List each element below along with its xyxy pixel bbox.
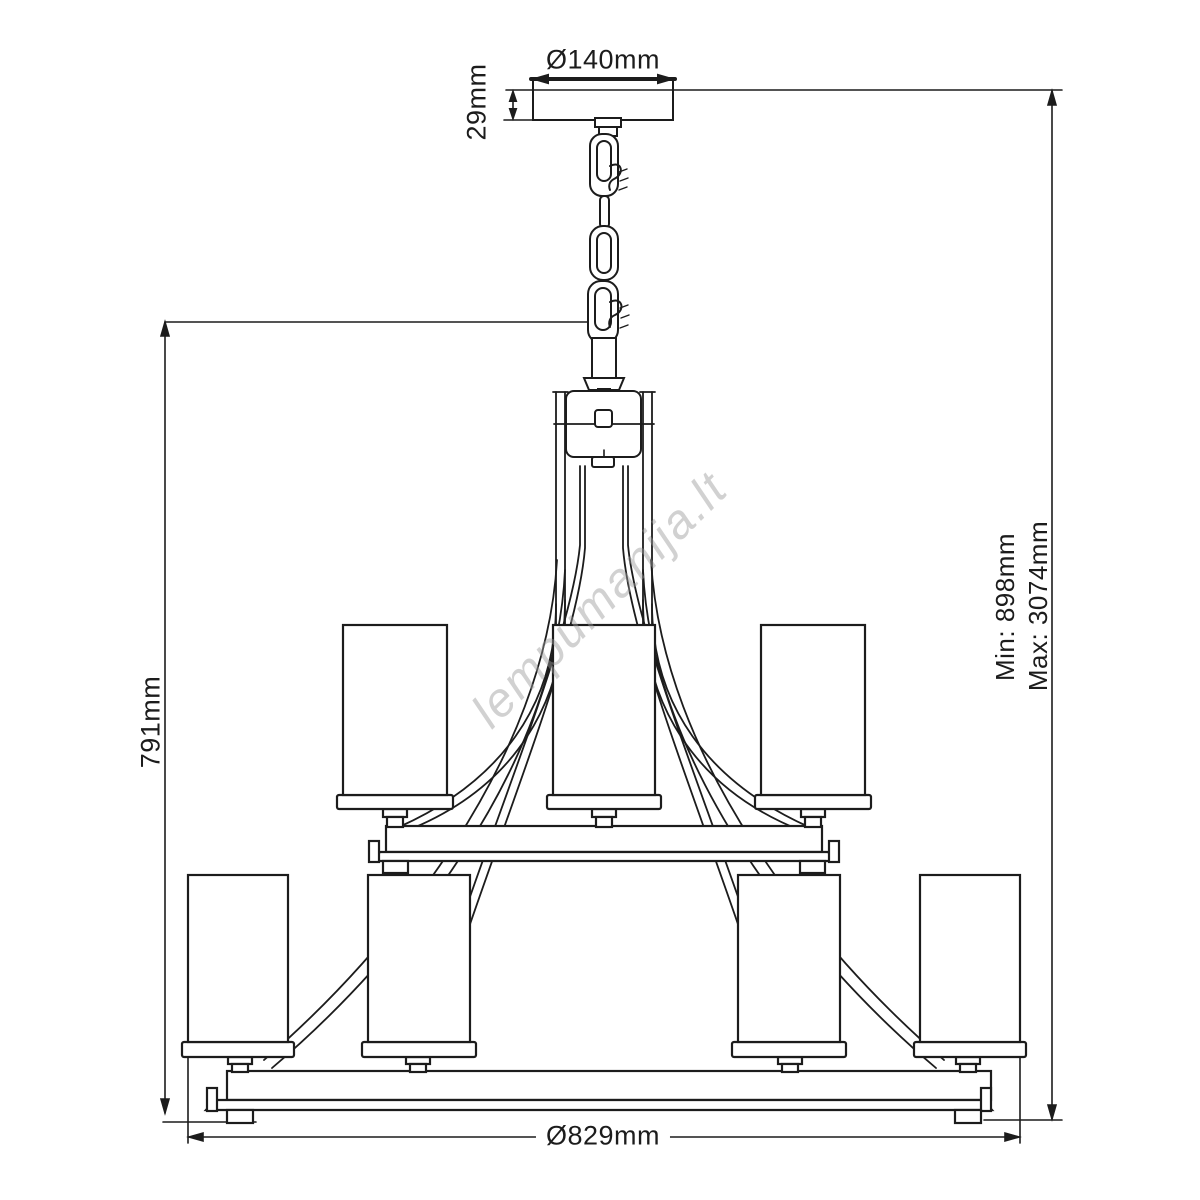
dim-canopy-height: 29mm (464, 63, 491, 140)
bar-finial (955, 1110, 981, 1123)
bar-finial (800, 861, 825, 873)
arrowhead (1048, 91, 1056, 105)
bar-end-hook (369, 841, 379, 862)
center-hub (554, 391, 654, 467)
diagram-canvas: Ø140mm 29mm 791mm Min: 898mm Max: 3074mm… (0, 0, 1200, 1200)
shade-plate (732, 1042, 846, 1057)
arrowhead (510, 92, 516, 101)
arrowhead (1005, 1133, 1019, 1141)
shade-plate (337, 795, 453, 809)
cylinder-shade (738, 875, 840, 1042)
arrowhead (510, 109, 516, 118)
chandelier-line-drawing (0, 0, 1200, 1200)
candle-stem (406, 1057, 430, 1072)
bar-finial (227, 1110, 253, 1123)
shade-plate (182, 1042, 294, 1057)
bar-end-hook (981, 1088, 991, 1111)
bar-finial (383, 861, 408, 873)
bar-end-hook (207, 1088, 217, 1111)
dim-suspension-max: Max: 3074mm (1025, 521, 1051, 691)
chain-link (590, 226, 618, 280)
cylinder-shade (553, 625, 655, 795)
arrowhead (189, 1133, 203, 1141)
cylinder-shade (368, 875, 470, 1042)
ceiling-canopy (504, 75, 1062, 120)
cylinder-shade (761, 625, 865, 795)
dim-canopy-diameter: Ø140mm (546, 47, 660, 74)
cylinder-shade (920, 875, 1020, 1042)
shade-plate (362, 1042, 476, 1057)
arrowhead (161, 322, 169, 336)
shade-plate (547, 795, 661, 809)
dim-body-height: 791mm (138, 676, 165, 769)
shade-plate (755, 795, 871, 809)
shade-plate (914, 1042, 1026, 1057)
cylinder-shade (343, 625, 447, 795)
lower-tier-bar (206, 1071, 992, 1123)
chain-hook (588, 281, 618, 343)
candle-stem (383, 809, 407, 827)
candle-stem (956, 1057, 980, 1072)
candle-stem (801, 809, 825, 827)
upper-tier-lights (337, 625, 871, 827)
bar-end-hook (829, 841, 839, 862)
suspension-chain (584, 118, 629, 394)
candle-stem (228, 1057, 252, 1072)
cylinder-shade (188, 875, 288, 1042)
lower-tier-lights (182, 875, 1026, 1072)
arrowhead (1048, 1105, 1056, 1119)
arrowhead (161, 1099, 169, 1113)
candle-stem (592, 809, 616, 827)
dim-suspension-min: Min: 898mm (992, 533, 1018, 681)
candle-stem (778, 1057, 802, 1072)
dim-fixture-diameter: Ø829mm (536, 1123, 670, 1150)
